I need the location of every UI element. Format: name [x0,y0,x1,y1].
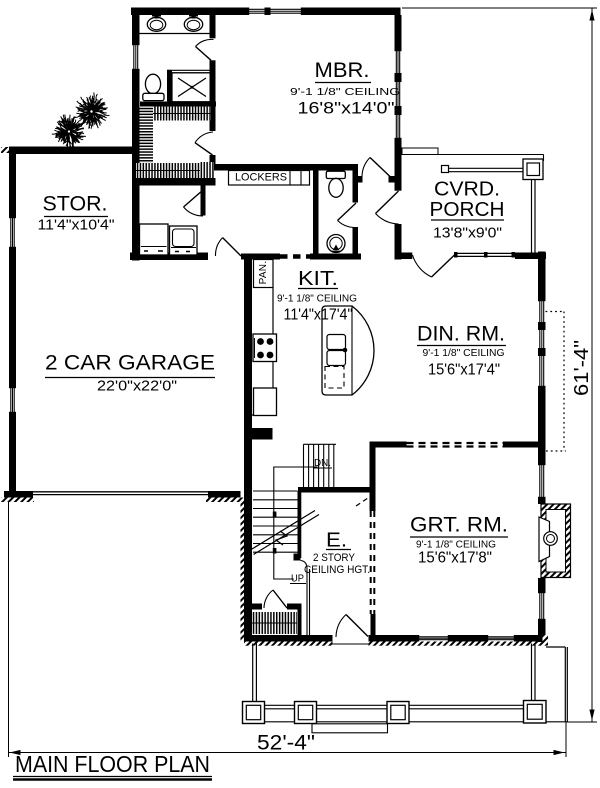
svg-text:61'-4": 61'-4" [571,340,593,396]
svg-text:STOR.: STOR. [43,193,108,216]
svg-text:PORCH: PORCH [430,199,505,221]
svg-text:PAN.: PAN. [258,261,269,285]
svg-text:16'8"x14'0": 16'8"x14'0" [298,99,395,118]
svg-text:KIT.: KIT. [298,268,338,290]
svg-text:LOCKERS: LOCKERS [235,172,287,184]
svg-text:2 STORY: 2 STORY [313,552,356,564]
svg-text:MBR.: MBR. [315,59,370,82]
svg-text:9'-1 1/8" CEILING: 9'-1 1/8" CEILING [423,347,505,359]
svg-text:15'6"x17'8": 15'6"x17'8" [418,550,492,567]
svg-text:9'-1 1/8" CEILING: 9'-1 1/8" CEILING [290,86,400,98]
svg-text:11'4"x17'4": 11'4"x17'4" [284,307,353,324]
svg-text:2 CAR GARAGE: 2 CAR GARAGE [45,352,215,375]
svg-text:9'-1 1/8" CEILING: 9'-1 1/8" CEILING [277,293,357,305]
svg-text:E.: E. [326,530,347,552]
svg-text:GRT. RM.: GRT. RM. [410,514,508,537]
svg-text:15'6"x17'4": 15'6"x17'4" [428,362,500,379]
svg-text:13'8"x9'0": 13'8"x9'0" [433,225,502,242]
svg-text:11'4"x10'4": 11'4"x10'4" [38,218,115,234]
svg-text:52'-4": 52'-4" [257,732,315,755]
svg-text:DIN. RM.: DIN. RM. [417,323,505,346]
svg-text:DN.: DN. [314,458,331,469]
svg-text:CVRD.: CVRD. [434,179,500,201]
svg-text:MAIN FLOOR PLAN: MAIN FLOOR PLAN [15,751,210,777]
svg-text:UP: UP [291,574,304,585]
svg-text:22'0"x22'0": 22'0"x22'0" [97,379,177,395]
svg-text:CEILING HGT.: CEILING HGT. [304,564,370,576]
